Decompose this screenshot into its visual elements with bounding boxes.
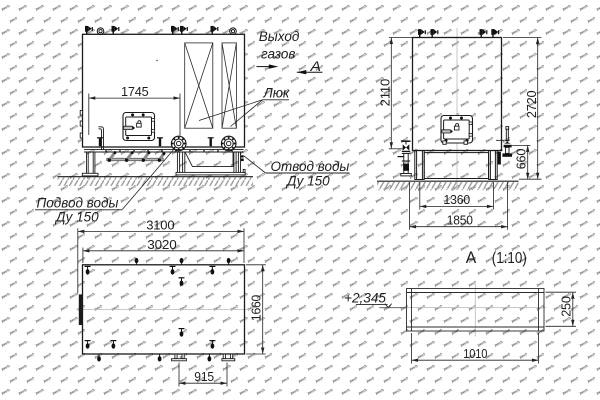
svg-text:Люк: Люк	[263, 86, 290, 101]
svg-text:1660: 1660	[249, 295, 264, 321]
svg-text:1850: 1850	[447, 212, 473, 227]
svg-text:1010: 1010	[463, 346, 487, 361]
svg-text:660: 660	[514, 149, 529, 170]
svg-text:3020: 3020	[147, 237, 176, 252]
svg-text:+2,345: +2,345	[344, 291, 386, 306]
svg-text:2110: 2110	[377, 79, 392, 107]
svg-text:250: 250	[559, 296, 574, 317]
svg-text:Ду 150: Ду 150	[54, 210, 99, 225]
svg-text:2720: 2720	[524, 91, 539, 119]
svg-text:Выход: Выход	[259, 29, 300, 44]
svg-text:1360: 1360	[444, 192, 471, 207]
svg-text:газов: газов	[261, 47, 295, 62]
svg-text:3100: 3100	[146, 218, 174, 233]
svg-text:Ду 150: Ду 150	[285, 174, 330, 189]
svg-text:Отвод воды: Отвод воды	[271, 159, 350, 174]
svg-text:1745: 1745	[121, 84, 149, 99]
svg-text:(1:10): (1:10)	[492, 250, 527, 267]
svg-text:А: А	[466, 248, 477, 267]
svg-text:915: 915	[194, 369, 214, 384]
svg-text:Подвод воды: Подвод воды	[37, 196, 119, 211]
